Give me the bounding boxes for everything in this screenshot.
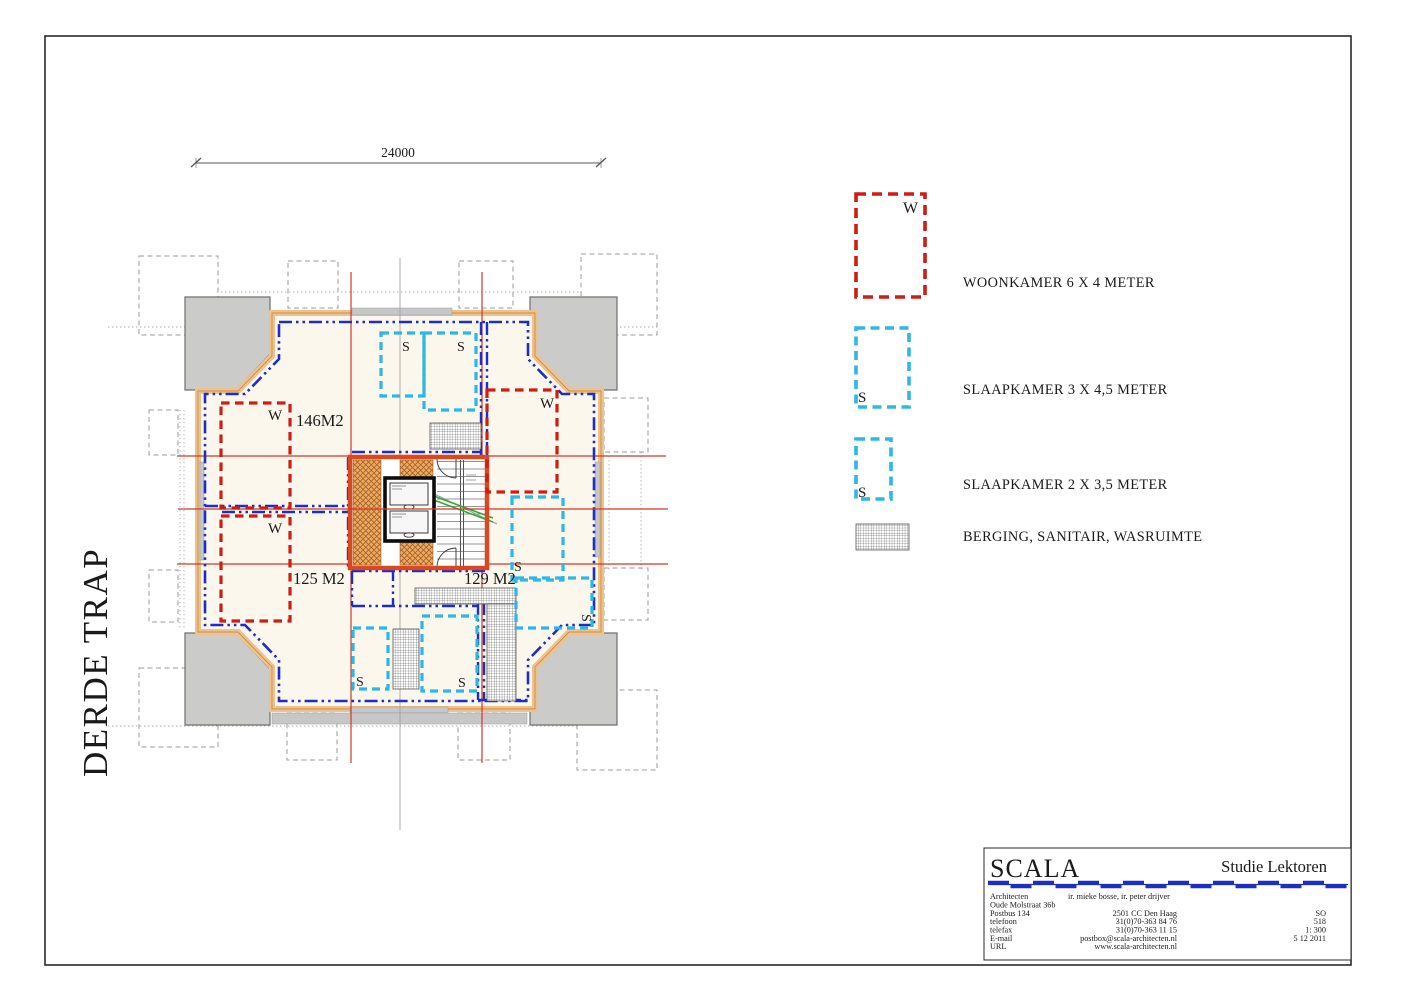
legend-item-slaapkamer-klein: S SLAAPKAMER 2 X 3,5 METER xyxy=(856,439,1168,501)
tb-row-label: URL xyxy=(990,942,1006,951)
legend-item-slaapkamer-groot: S SLAAPKAMER 3 X 4,5 METER xyxy=(856,328,1168,407)
slaapkamer-marker: S xyxy=(356,675,364,690)
legend-marker-w: W xyxy=(903,200,919,217)
legend-label-berging: BERGING, SANITAIR, WASRUIMTE xyxy=(963,529,1202,545)
tb-row-extra: 5 12 2011 xyxy=(1294,934,1326,943)
firm-name: SCALA xyxy=(990,854,1080,883)
legend-item-woonkamer: W WOONKAMER 6 X 4 METER xyxy=(856,194,1155,297)
slaapkamer-marker: S xyxy=(458,676,466,691)
drawing-sheet: W W W S S S S S S 146M2 125 M2 129 M2 xyxy=(0,0,1415,1000)
area-label-125m2: 125 M2 xyxy=(293,569,345,588)
dimension-value: 24000 xyxy=(381,145,415,160)
woonkamer-marker: W xyxy=(268,408,283,424)
legend-swatch-berging xyxy=(856,524,909,550)
woonkamer-marker: W xyxy=(268,521,283,537)
slaapkamer-marker: S xyxy=(578,614,593,622)
legend-label-woonkamer: WOONKAMER 6 X 4 METER xyxy=(963,275,1155,291)
woonkamer-marker: W xyxy=(540,396,555,412)
title-block: SCALA Studie Lektoren Architecten ir. mi… xyxy=(984,848,1351,960)
floor-plan: W W W S S S S S S 146M2 125 M2 129 M2 xyxy=(76,145,668,830)
floor-plan-drawing: W W W S S S S S S 146M2 125 M2 129 M2 xyxy=(0,0,1415,1000)
area-label-146m2: 146M2 xyxy=(296,411,344,430)
legend-item-berging: BERGING, SANITAIR, WASRUIMTE xyxy=(856,524,1202,550)
dimension-line: 24000 xyxy=(191,145,606,168)
legend-label-slaapkamer-groot: SLAAPKAMER 3 X 4,5 METER xyxy=(963,382,1168,398)
legend-marker-s: S xyxy=(858,390,866,406)
slaapkamer-marker: S xyxy=(457,340,465,355)
tb-row-value: ir. mieke bosse, ir. peter drijver xyxy=(1068,892,1170,901)
legend-marker-s: S xyxy=(858,485,866,501)
project-name: Studie Lektoren xyxy=(1221,857,1327,876)
area-label-129m2: 129 M2 xyxy=(464,569,516,588)
slaapkamer-marker: S xyxy=(402,340,410,355)
tb-row-value: www.scala-architecten.nl xyxy=(1094,942,1177,951)
core-storage-hatch-left xyxy=(353,460,381,565)
legend: W WOONKAMER 6 X 4 METER S SLAAPKAMER 3 X… xyxy=(856,194,1202,550)
legend-label-slaapkamer-klein: SLAAPKAMER 2 X 3,5 METER xyxy=(963,477,1168,493)
plan-title: DERDE TRAP xyxy=(76,548,115,777)
